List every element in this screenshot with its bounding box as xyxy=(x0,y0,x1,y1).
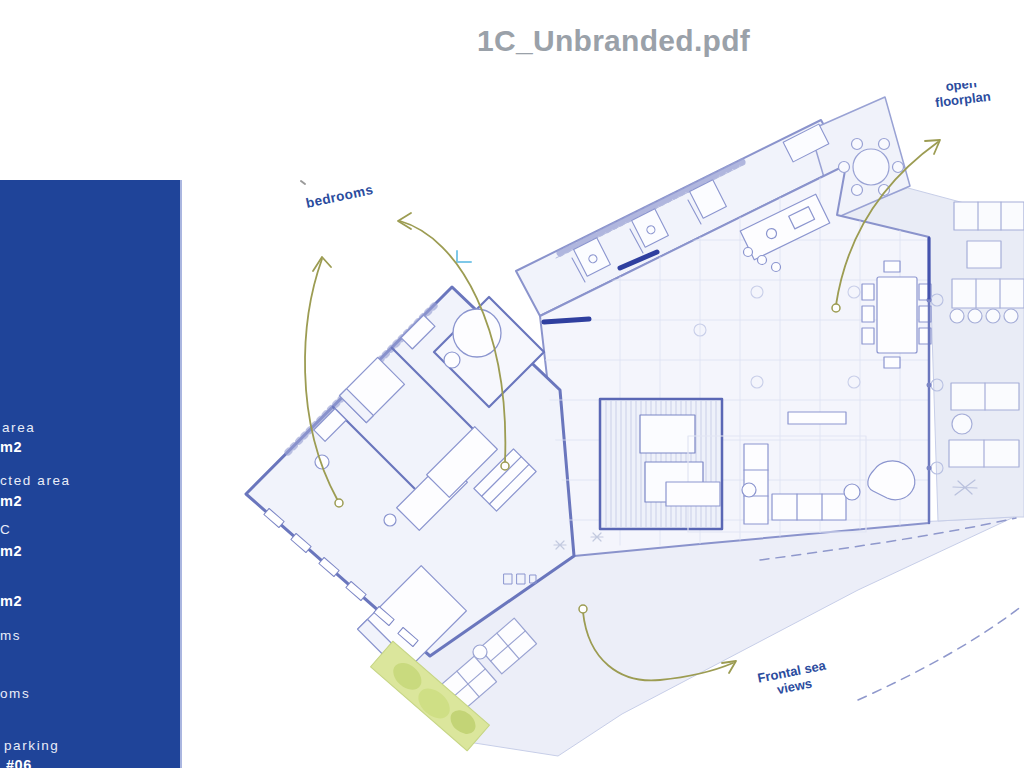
label-open-floorplan: open floorplan xyxy=(916,83,1008,123)
sidebar-value-m2-1: m2 xyxy=(0,439,22,455)
bath-tub xyxy=(453,309,501,357)
media-room xyxy=(600,399,722,529)
sidebar-text-bedrooms: ms xyxy=(0,628,21,643)
sidebar-value-m2-4: m2 xyxy=(0,593,22,609)
sidebar-text-parking: parking xyxy=(4,738,59,753)
stray-mark xyxy=(301,181,305,184)
sidebar-value-box: #06 xyxy=(6,757,32,768)
pdf-page: 1C_Unbranded.pdf area m2 cted area m2 C … xyxy=(0,0,1024,768)
sidebar-text-constructed: cted area xyxy=(0,473,71,488)
sidebar-text-c: C xyxy=(0,522,11,537)
living-block xyxy=(540,165,929,556)
sidebar-value-m2-2: m2 xyxy=(0,493,22,509)
info-sidebar: area m2 cted area m2 C m2 m2 ms oms park… xyxy=(0,180,182,768)
sidebar-value-m2-3: m2 xyxy=(0,543,22,559)
sidebar-text-bathrooms: oms xyxy=(0,686,30,701)
entry-mark xyxy=(457,251,471,262)
page-title: 1C_Unbranded.pdf xyxy=(477,24,750,58)
sidebar-text-area: area xyxy=(2,420,35,435)
